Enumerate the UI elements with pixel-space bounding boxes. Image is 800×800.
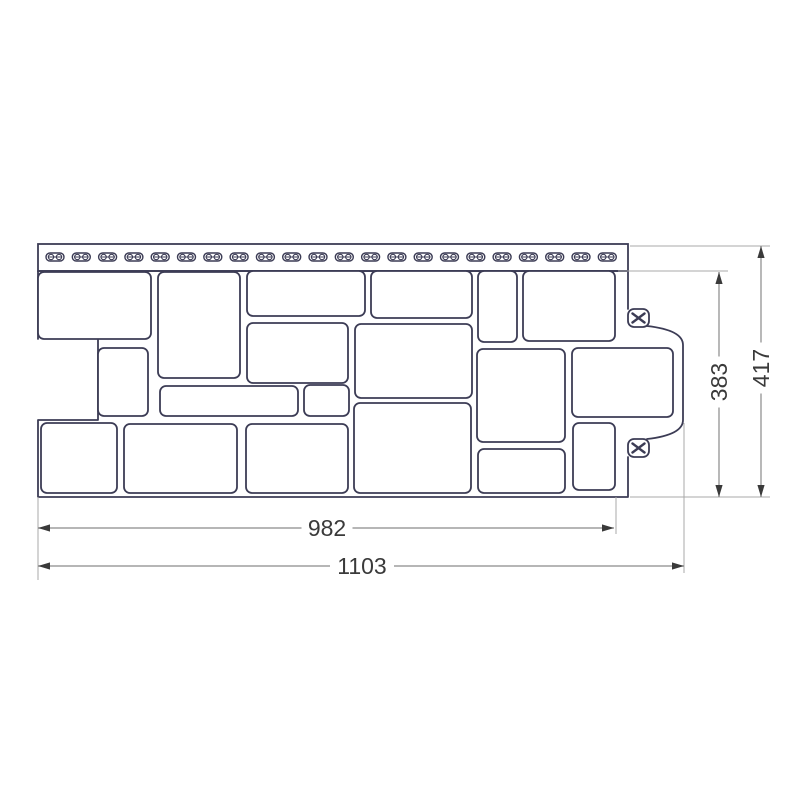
stone-block xyxy=(124,424,237,493)
stone-block xyxy=(158,272,240,378)
stone-block xyxy=(98,348,148,416)
stone-block xyxy=(246,424,348,493)
dimension-total_width: 1103 xyxy=(38,553,684,579)
x-fastener-slot-icon xyxy=(628,309,649,327)
stone-block xyxy=(247,323,348,383)
dimension-label-useful_height: 383 xyxy=(706,363,732,401)
x-fastener-slot-icon xyxy=(628,439,649,457)
stone-block xyxy=(304,385,349,416)
dimension-label-total_height: 417 xyxy=(748,349,774,387)
nail-hem-strip xyxy=(38,244,628,271)
drawing-canvas: 9821103383417 xyxy=(0,0,800,800)
stone-block xyxy=(478,449,565,493)
stone-block xyxy=(355,324,472,398)
dimension-useful_width: 982 xyxy=(38,515,614,541)
dimension-total_height: 417 xyxy=(748,246,774,497)
stone-block xyxy=(247,271,365,316)
dimension-label-useful_width: 982 xyxy=(308,515,346,541)
dimension-useful_height: 383 xyxy=(706,272,732,497)
stone-block xyxy=(160,386,298,416)
stone-block xyxy=(477,349,565,442)
stone-block xyxy=(573,423,615,490)
stone-block xyxy=(41,423,117,493)
stone-block xyxy=(354,403,471,493)
stone-block xyxy=(38,272,151,339)
dimension-label-total_width: 1103 xyxy=(337,553,386,579)
stone-block xyxy=(572,348,673,417)
stone-block xyxy=(371,271,472,318)
stone-block xyxy=(523,271,615,341)
stone-block xyxy=(478,271,517,342)
panel-technical-drawing: 9821103383417 xyxy=(0,0,800,800)
